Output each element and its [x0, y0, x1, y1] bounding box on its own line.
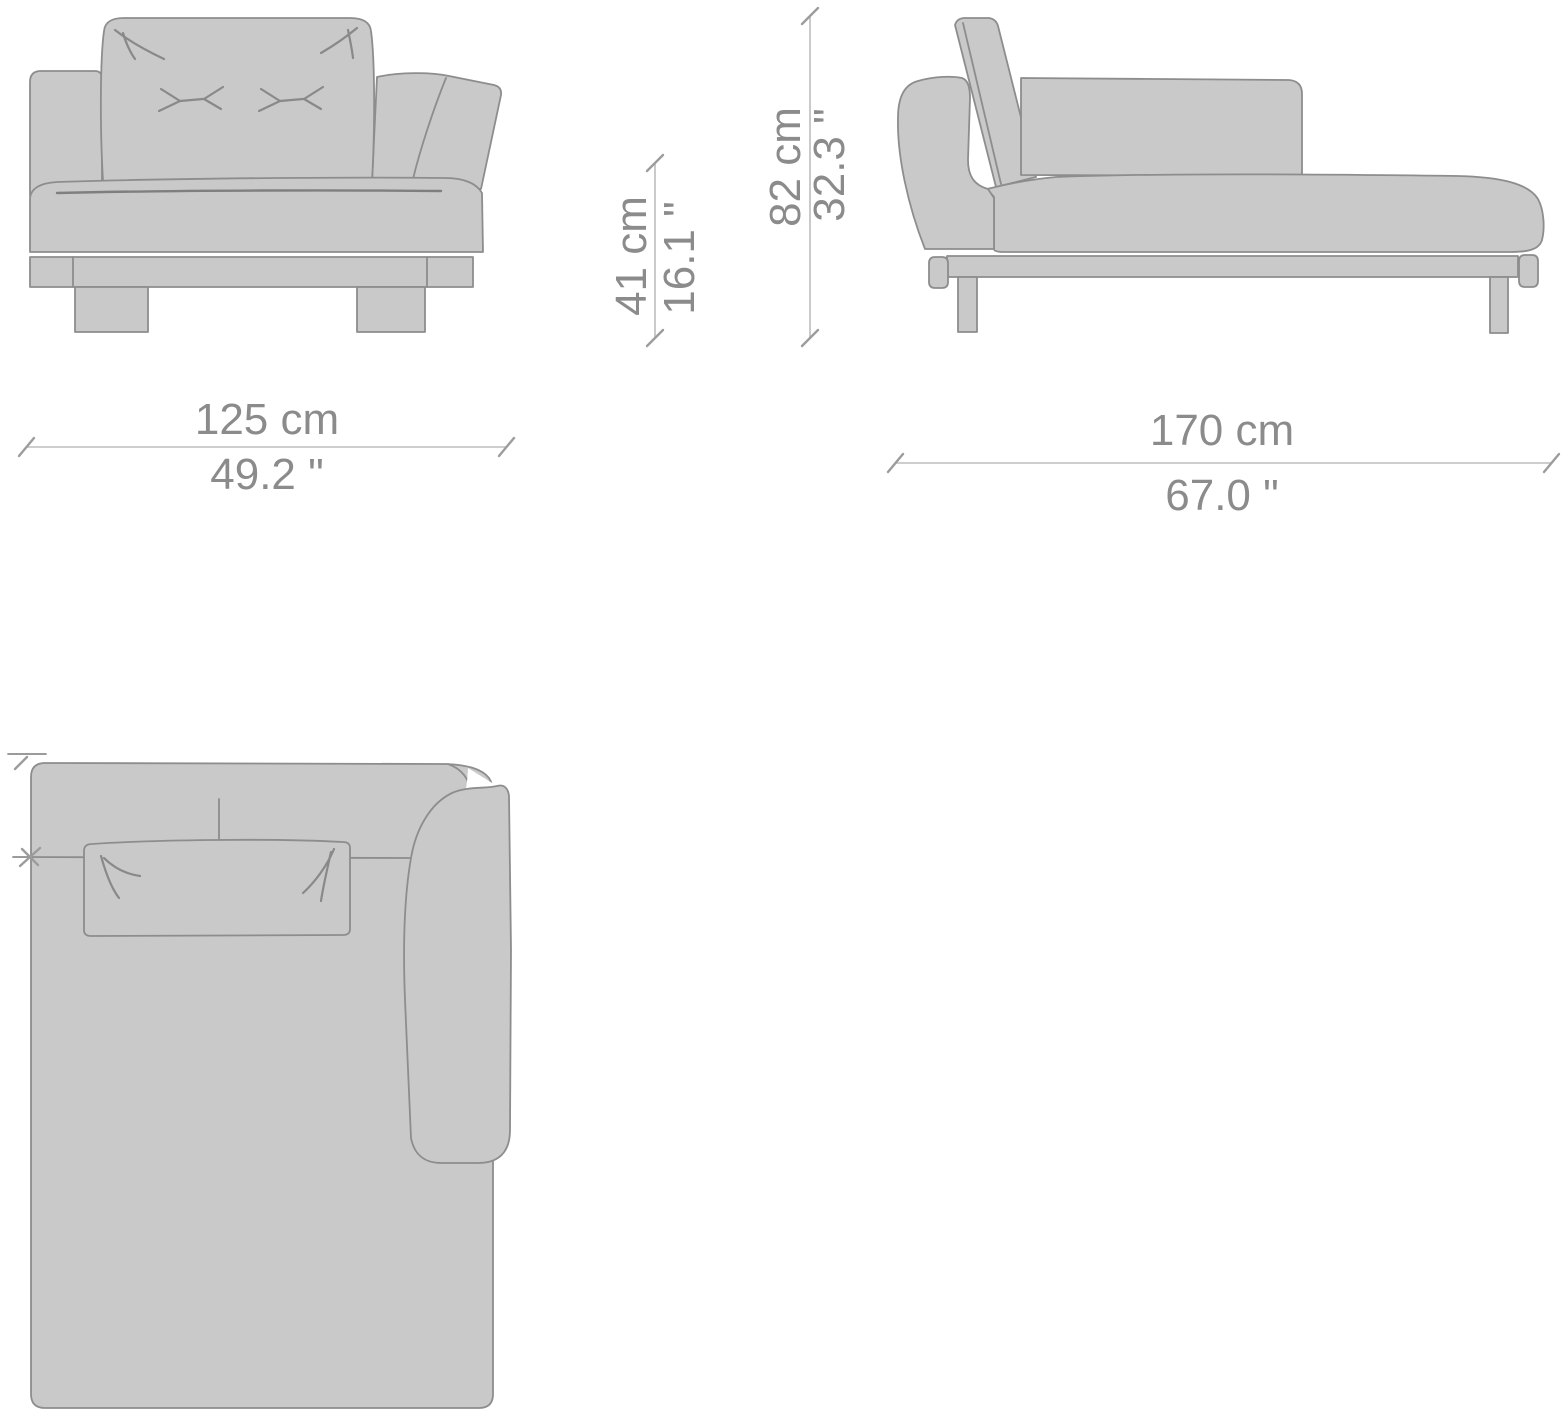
front-seat: [30, 178, 483, 252]
front-back-cushion: [101, 18, 374, 184]
front-right-arm: [372, 73, 501, 189]
front-left-arm: [30, 71, 102, 196]
front-view-drawing: [30, 18, 501, 332]
side-rear-foot: [1519, 255, 1538, 287]
front-width-cm-label: 125 cm: [195, 398, 339, 442]
side-arm-panel: [1021, 78, 1302, 176]
side-length-dimension: [888, 454, 1559, 472]
drawing-canvas: 125 cm 49.2 " 170 cm 67.0 " 41 cm 16.1 "…: [0, 0, 1562, 1418]
side-leg: [958, 277, 977, 332]
side-base-rail: [947, 256, 1518, 277]
front-leg: [75, 287, 148, 332]
front-base: [30, 257, 473, 287]
seat-height-cm-label: 41 cm: [610, 196, 654, 316]
side-leg: [1490, 277, 1508, 333]
side-seat: [987, 174, 1544, 252]
top-view-drawing: [8, 754, 511, 1408]
overall-height-inch-label: 32.3 ": [808, 108, 852, 221]
seat-height-inch-label: 16.1 ": [658, 201, 702, 314]
overall-height-cm-label: 82 cm: [764, 107, 808, 227]
plan-back-cushion: [84, 840, 350, 936]
plan-corner-tick: [15, 757, 27, 769]
side-length-cm-label: 170 cm: [1150, 409, 1294, 453]
front-leg: [357, 287, 425, 332]
side-view-drawing: [898, 18, 1544, 333]
front-width-inch-label: 49.2 ": [210, 453, 323, 497]
side-length-inch-label: 67.0 ": [1165, 474, 1278, 518]
side-front-foot: [929, 257, 948, 288]
plan-armrest: [404, 785, 511, 1163]
